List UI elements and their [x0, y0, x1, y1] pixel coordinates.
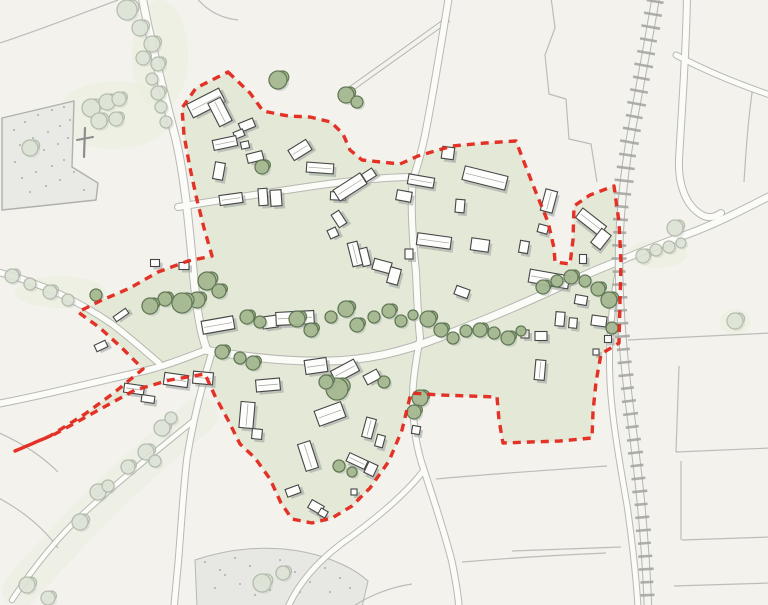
railway-tie: [628, 452, 643, 454]
building-footprint: [519, 240, 530, 253]
tree: [564, 270, 578, 284]
railway-tie: [621, 387, 634, 388]
tree-faded: [19, 577, 35, 593]
tree: [516, 326, 526, 336]
cemetery-dot: [73, 171, 75, 173]
cemetery-dot: [37, 114, 39, 116]
tree: [407, 405, 421, 419]
tree-faded: [112, 92, 126, 106]
tree-faded: [151, 57, 165, 71]
stipple-dot: [254, 594, 256, 596]
stipple-dot: [234, 557, 236, 559]
cemetery-dot: [43, 149, 45, 151]
building-footprint: [574, 295, 587, 306]
tree: [579, 275, 591, 287]
building-footprint: [569, 318, 578, 329]
building-footprint: [411, 425, 420, 434]
building: [239, 401, 258, 431]
stipple-dot: [239, 583, 241, 585]
tree-faded: [253, 574, 271, 592]
cemetery-dot: [59, 125, 61, 127]
cemetery-dot: [67, 137, 69, 139]
building-footprint: [580, 255, 587, 264]
tree-faded: [151, 86, 165, 100]
tree: [172, 293, 192, 313]
tree-faded: [636, 249, 650, 263]
tree-faded: [727, 313, 743, 329]
building: [470, 238, 493, 256]
tree: [536, 280, 550, 294]
cemetery-dot: [35, 171, 37, 173]
cemetery-dot: [51, 109, 53, 111]
stipple-dot: [324, 567, 326, 569]
cemetery-dot: [63, 106, 65, 108]
railway-tie: [613, 219, 628, 220]
cemetery-dot: [14, 161, 16, 163]
tree-faded: [663, 241, 675, 253]
building: [306, 162, 337, 177]
railway-tie: [617, 349, 630, 350]
tree-faded: [155, 101, 167, 113]
tree-faded: [117, 0, 137, 20]
building-footprint: [252, 429, 263, 440]
tree: [434, 323, 448, 337]
stipple-dot: [204, 561, 206, 563]
railway-tie: [618, 362, 632, 363]
building-footprint: [535, 332, 547, 341]
building-footprint: [591, 315, 607, 327]
tree-faded: [132, 20, 148, 36]
tree-faded: [91, 113, 107, 129]
tree: [488, 327, 500, 339]
railway-tie: [631, 465, 644, 466]
cemetery-dot: [13, 129, 15, 131]
tree: [325, 311, 337, 323]
building-footprint: [605, 336, 612, 343]
tree-faded: [136, 51, 150, 65]
tree-faded: [72, 514, 88, 530]
tree-faded: [165, 412, 177, 424]
tree: [601, 292, 617, 308]
railway-tie: [615, 336, 630, 337]
tree: [350, 318, 364, 332]
tree: [255, 160, 269, 174]
building-footprint: [151, 260, 160, 267]
tree: [351, 96, 363, 108]
cemetery-dot: [32, 137, 34, 139]
building-footprint: [405, 249, 413, 259]
tree: [347, 467, 357, 477]
tree: [254, 316, 266, 328]
cemetery-dot: [69, 119, 71, 121]
cemetery-dot: [24, 121, 26, 123]
tree-faded: [146, 73, 158, 85]
tree: [240, 310, 254, 324]
tree: [378, 376, 390, 388]
tree: [269, 71, 287, 89]
tree: [215, 345, 229, 359]
tree-faded: [41, 591, 55, 605]
tree-faded: [149, 455, 161, 467]
tree-faded: [22, 140, 38, 156]
railway-tie: [639, 569, 654, 570]
tree: [420, 311, 436, 327]
building: [256, 378, 284, 395]
cemetery-dot: [51, 165, 53, 167]
stipple-dot: [219, 569, 221, 571]
tree: [382, 304, 396, 318]
cemetery-dot: [29, 191, 31, 193]
railway-tie: [638, 543, 651, 544]
building-footprint: [555, 312, 565, 327]
tree: [304, 323, 318, 337]
building: [192, 371, 216, 388]
cemetery-dot: [57, 143, 59, 145]
cemetery-dot: [45, 185, 47, 187]
cemetery-dot: [63, 159, 65, 161]
tree: [395, 315, 407, 327]
tree: [460, 325, 472, 337]
tree-faded: [62, 294, 74, 306]
cemetery-dot: [59, 179, 61, 181]
stipple-dot: [339, 577, 341, 579]
tree: [551, 275, 563, 287]
tree: [606, 322, 618, 334]
stipple-dot: [224, 574, 226, 576]
building-footprint: [240, 141, 249, 150]
railway-tie: [619, 374, 634, 376]
tree-faded: [144, 36, 160, 52]
tree: [246, 356, 260, 370]
building-footprint: [141, 395, 155, 404]
cemetery-dot: [83, 189, 85, 191]
tree: [338, 301, 354, 317]
building-footprint: [270, 190, 282, 207]
tree: [234, 352, 246, 364]
building-footprint: [258, 188, 268, 206]
railway-tie: [614, 193, 631, 195]
stipple-dot: [249, 565, 251, 567]
tree-faded: [43, 285, 57, 299]
tree: [142, 298, 158, 314]
railway-tie: [638, 556, 652, 557]
stipple-dot: [214, 587, 216, 589]
church-cross-icon: [84, 128, 85, 157]
railway-tie: [636, 530, 651, 531]
building: [258, 188, 271, 209]
building-footprint: [455, 199, 465, 213]
tree-faded: [102, 480, 114, 492]
tree-faded: [109, 112, 123, 126]
railway-tie: [622, 400, 636, 402]
tree: [289, 311, 305, 327]
stipple-dot: [309, 581, 311, 583]
tree-faded: [667, 220, 683, 236]
tree: [333, 460, 345, 472]
tree-faded: [5, 269, 19, 283]
building-footprint: [351, 489, 357, 495]
railway-tie: [631, 478, 645, 480]
tree-faded: [276, 566, 290, 580]
railway-tie: [627, 439, 641, 441]
tree: [212, 284, 226, 298]
stipple-dot: [329, 591, 331, 593]
tree-faded: [160, 116, 172, 128]
stipple-dot: [294, 571, 296, 573]
cemetery-dot: [47, 131, 49, 133]
cemetery-dot: [21, 177, 23, 179]
tree: [319, 375, 333, 389]
railway-tie: [635, 504, 648, 505]
tree-faded: [676, 238, 686, 248]
tree: [501, 331, 515, 345]
building-footprint: [213, 162, 226, 180]
tree: [447, 332, 459, 344]
stipple-dot: [279, 559, 281, 561]
building-footprint: [396, 190, 413, 202]
building-footprint: [593, 349, 599, 355]
building-footprint: [470, 238, 489, 252]
railway-tie: [640, 582, 653, 583]
railway-tie: [641, 595, 655, 596]
tree: [408, 310, 418, 320]
cemetery-dot: [19, 144, 21, 146]
tree: [368, 311, 380, 323]
tree-faded: [650, 244, 662, 256]
tree-faded: [24, 278, 36, 290]
village-masterplan-map: [0, 0, 768, 605]
tree-faded: [121, 460, 135, 474]
map-canvas: [0, 0, 768, 605]
tree: [473, 323, 487, 337]
railway-tie: [626, 426, 639, 428]
railway-tie: [635, 517, 649, 518]
stipple-dot: [349, 587, 351, 589]
railway-tie: [632, 491, 647, 493]
